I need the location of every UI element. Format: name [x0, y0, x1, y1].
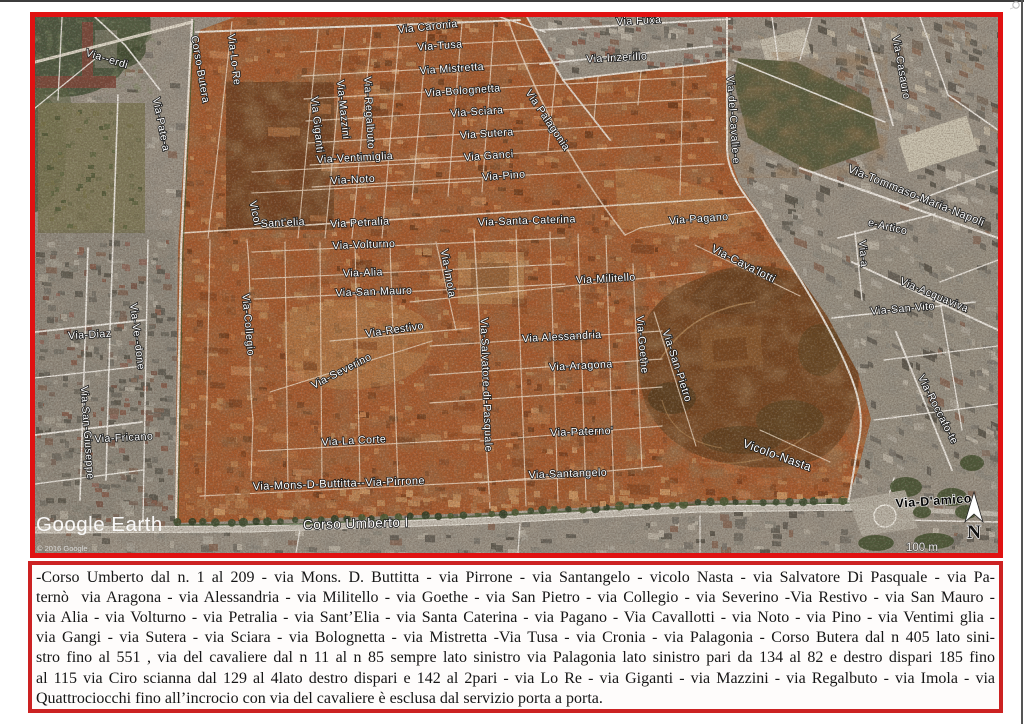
svg-text:Via-Volturno: Via-Volturno — [332, 238, 395, 252]
svg-text:Sant'elia: Sant'elia — [260, 216, 305, 230]
svg-text:100 m: 100 m — [906, 542, 938, 553]
svg-text:© 2016 Google: © 2016 Google — [37, 544, 88, 553]
svg-text:Via-a: Via-a — [856, 240, 870, 268]
svg-text:Via-Paterno': Via-Paterno' — [550, 425, 614, 439]
svg-text:N: N — [967, 522, 981, 543]
svg-text:Via-Diaz: Via-Diaz — [68, 328, 112, 342]
svg-text:Via-Noto: Via-Noto — [330, 173, 375, 187]
svg-text:Google Earth: Google Earth — [36, 513, 163, 536]
svg-text:Corso Umberto I: Corso Umberto I — [303, 515, 409, 533]
svg-text:Via-Alia: Via-Alia — [343, 266, 383, 279]
